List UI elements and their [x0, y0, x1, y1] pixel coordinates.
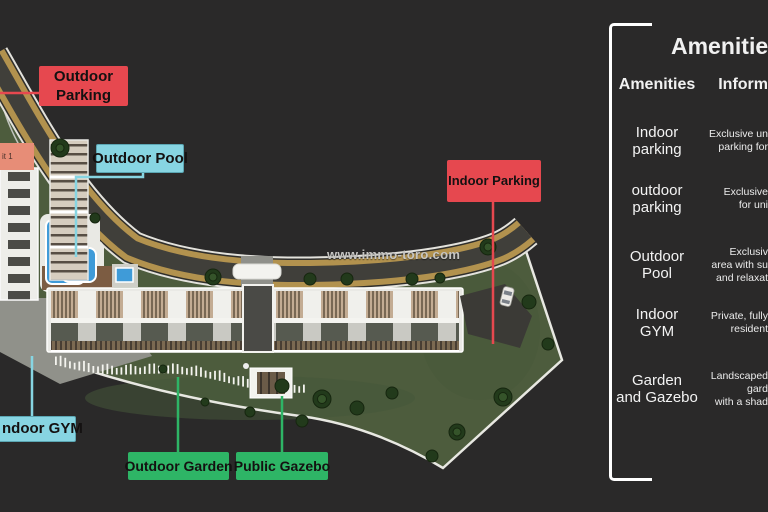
- amenity-row-indoor-gym: IndoorGYM Private, fullyresident: [611, 294, 768, 352]
- site-plan-poster: it 1: [0, 0, 768, 512]
- amenities-panel: Amenities Amenities Inform Indoorparking…: [609, 0, 768, 512]
- indoor-gym-label: ndoor GYM: [0, 416, 76, 442]
- watermark-url: www.immo-toro.com: [327, 247, 460, 262]
- panel-title: Amenities: [671, 33, 768, 60]
- amenity-row-indoor-parking: Indoorparking Exclusive unparking for: [611, 112, 768, 170]
- main-building: [47, 285, 463, 353]
- amenity-row-outdoor-parking: outdoorparking Exclusivefor uni: [611, 170, 768, 228]
- outdoor-garden-label: Outdoor Garden: [128, 452, 229, 480]
- outdoor-pool-label: Outdoor Pool: [96, 144, 184, 173]
- unit-1-label: it 1: [2, 152, 13, 161]
- amenity-row-garden-gazebo: Gardenand Gazebo Landscapedgardwith a sh…: [611, 356, 768, 422]
- outdoor-parking-label: Outdoor Parking: [39, 66, 128, 106]
- col-header-information: Inform: [707, 76, 768, 94]
- public-gazebo-label: Public Gazebo: [236, 452, 328, 480]
- panel-header-row: Amenities Inform: [609, 76, 768, 98]
- entrance-corridor: [243, 285, 273, 352]
- col-header-amenities: Amenities: [611, 76, 703, 94]
- amenity-row-outdoor-pool: OutdoorPool Exclusivarea with suand rela…: [611, 232, 768, 298]
- indoor-parking-label: Indoor Parking: [447, 160, 541, 202]
